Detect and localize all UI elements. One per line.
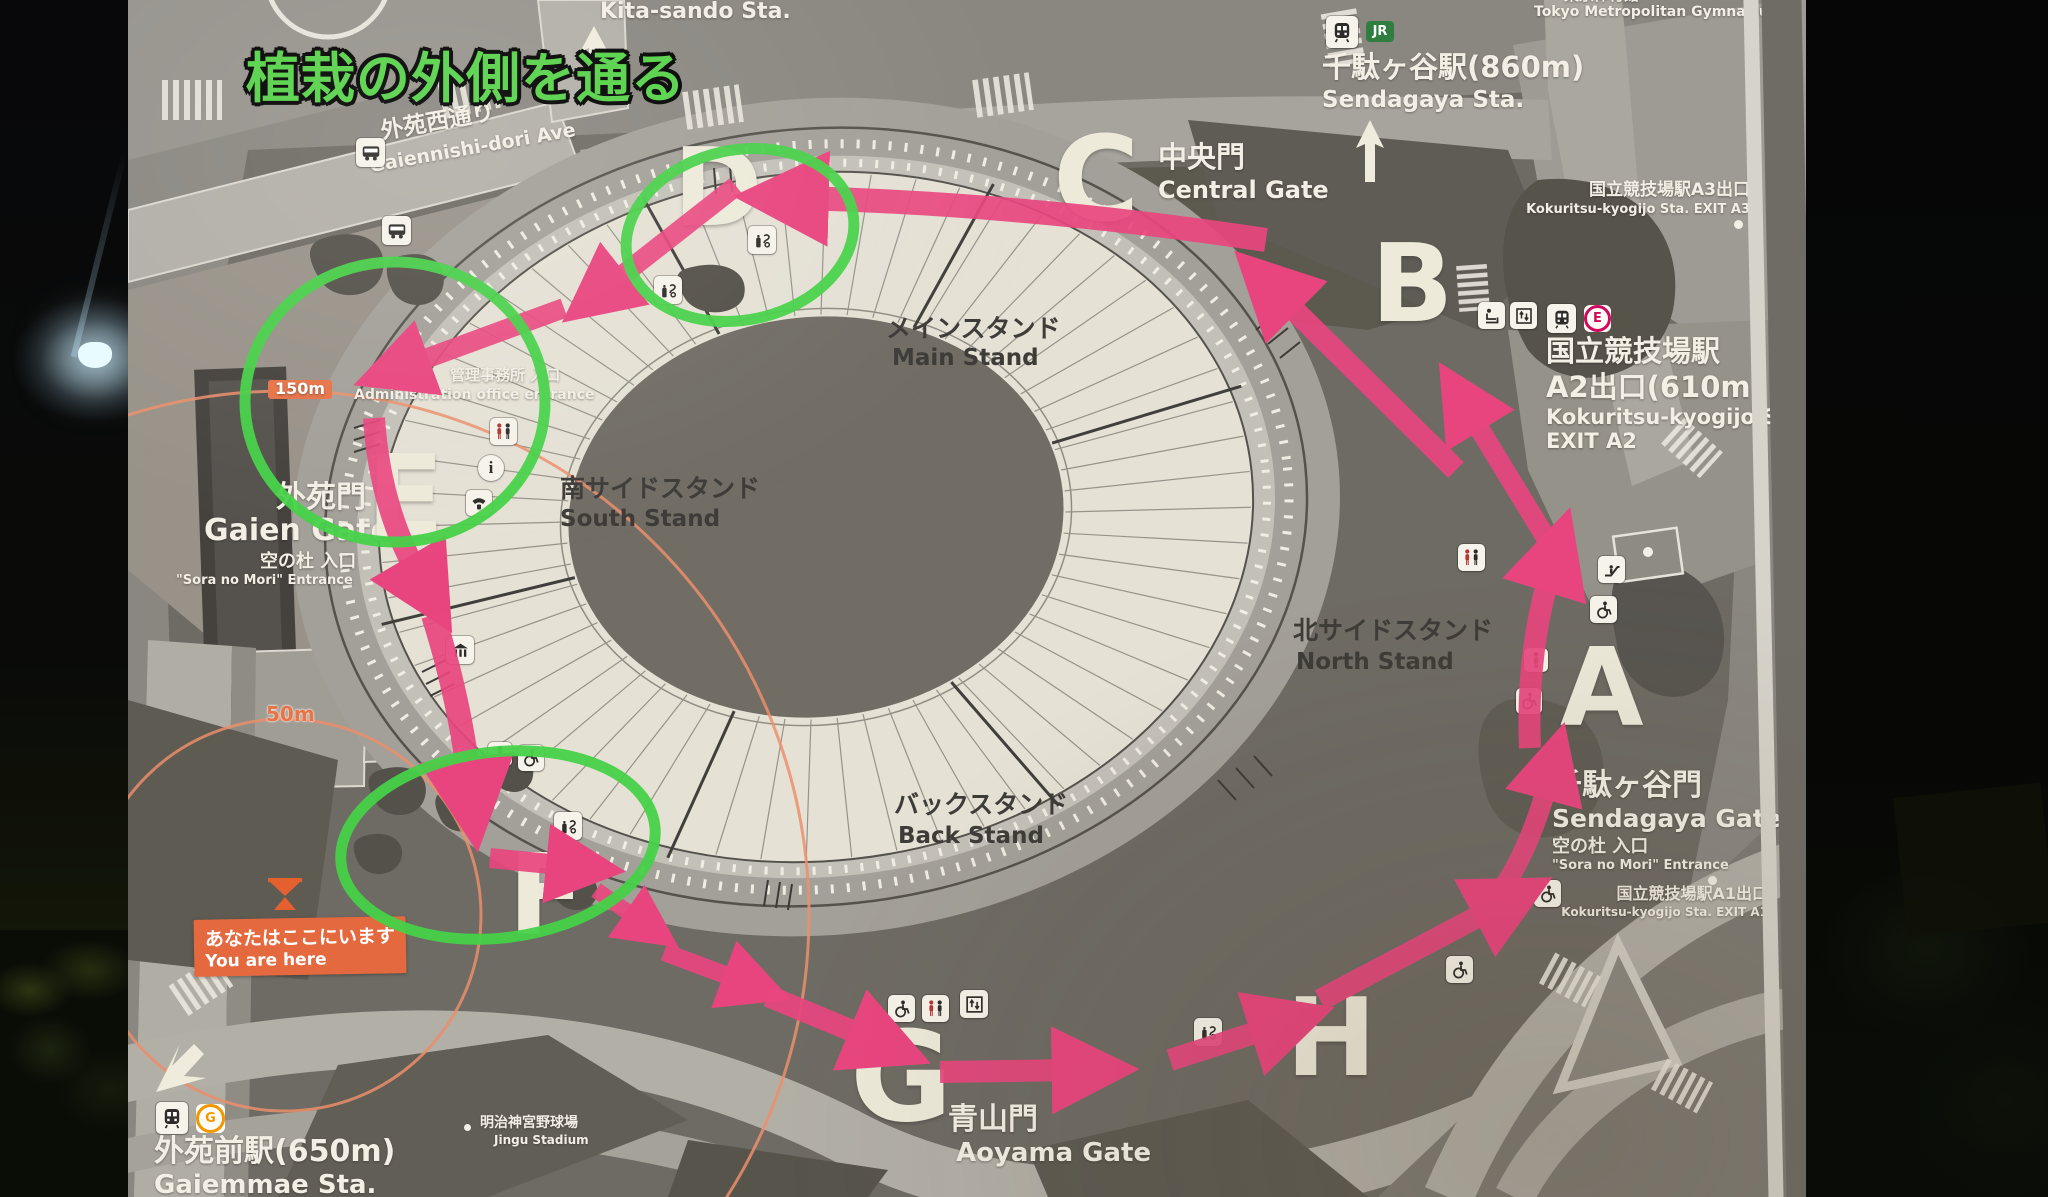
gaien-soranomori-label-jp: 空の杜 入口 [260, 553, 356, 572]
jr-line-badge: JR [1366, 21, 1394, 42]
streetlight [78, 342, 112, 368]
kitasando-station-label: Kita-sando Sta. [600, 0, 791, 23]
jingu-stadium-label-jp: 明治神宮野球場 [480, 1116, 578, 1131]
night-bushes-right [1806, 0, 2048, 1197]
north-stand-label-jp: 北サイドスタンド [1293, 618, 1493, 644]
gate-c-letter: C [1053, 118, 1140, 242]
north-stand-label-en: North Stand [1296, 650, 1454, 674]
night-photo-of-stadium-map-sign: Kita-sando Sta. 外苑西通り Gaiennishi-dori Av… [0, 0, 2048, 1197]
gaien-gate-label-jp: 外苑門 [276, 482, 366, 514]
kokuritsu-station-label-jp2: A2出口(610m) [1546, 372, 1764, 402]
gate-f-letter: F [508, 838, 585, 956]
distance-50m-label: 50m [266, 704, 315, 725]
train-icon [156, 1102, 188, 1134]
distance-150m-chip: 150m [268, 380, 332, 399]
main-stand-label-jp: メインスタンド [886, 316, 1061, 342]
gaien-gate-label-en: Gaien Gate [204, 515, 391, 547]
sendagaya-gate-label-en: Sendagaya Gate [1552, 806, 1782, 832]
elevator-icon [960, 990, 988, 1018]
exit-a1-label-en: Kokuritsu-kyogijo Sta. EXIT A1 [1498, 906, 1768, 919]
ticket-window-icon [654, 276, 682, 304]
kokuritsu-station-label-en2: EXIT A2 [1546, 430, 1637, 452]
phone-icon [466, 490, 492, 516]
aoyama-gate-label-jp: 青山門 [948, 1104, 1038, 1136]
toilet-icon [922, 995, 949, 1022]
admin-office-label-en: Administration office entrance [354, 388, 595, 403]
sendagaya-station-label-jp: 千駄ヶ谷駅(860m) [1322, 52, 1584, 82]
you-are-here-en: You are here [205, 948, 395, 971]
bus-stop-icon [356, 138, 385, 167]
back-stand-label-jp: バックスタンド [894, 792, 1068, 818]
sendagaya-soranomori-label-en: "Sora no Mori" Entrance [1552, 859, 1729, 873]
central-gate-label-en: Central Gate [1158, 178, 1329, 203]
toilet-icon [490, 418, 517, 445]
wheelchair-icon [1446, 956, 1473, 983]
wheelchair-icon [1590, 596, 1617, 623]
bench-icon [1478, 302, 1505, 329]
aoyama-gate-label-en: Aoyama Gate [956, 1140, 1151, 1167]
jingu-dot [464, 1124, 471, 1131]
security-check-icon [554, 812, 582, 840]
gaien-soranomori-label-en: "Sora no Mori" Entrance [176, 574, 353, 588]
security-check-icon [748, 226, 776, 254]
exit-a3-dot [1734, 220, 1743, 229]
central-gate-label-jp: 中央門 [1158, 142, 1245, 172]
stadium-map-signboard: Kita-sando Sta. 外苑西通り Gaiennishi-dori Av… [128, 0, 1806, 1197]
gate-b-letter: B [1371, 228, 1453, 341]
back-stand-label-en: Back Stand [898, 824, 1044, 848]
sendagaya-soranomori-label-jp: 空の杜 入口 [1552, 838, 1648, 857]
kokuritsu-station-label-jp1: 国立競技場駅 [1546, 336, 1720, 366]
gate-h-letter: H [1286, 982, 1376, 1095]
security-check-icon [1194, 1018, 1222, 1046]
gate-e-letter: E [366, 438, 445, 559]
jingu-stadium-label-en: Jingu Stadium [494, 1134, 589, 1147]
gate-g-letter: G [850, 1012, 953, 1143]
gaiemmae-station-label-jp: 外苑前駅(650m) [154, 1136, 395, 1168]
exit-a3-label-en: Kokuritsu-kyogijo Sta. EXIT A3 [1526, 203, 1750, 217]
wheelchair-icon [888, 995, 915, 1022]
gate-a-letter: A [1560, 632, 1644, 745]
dark-sign-right [1893, 783, 2048, 938]
exit-a1-label-jp: 国立競技場駅A1出口 [1528, 886, 1768, 903]
escalator-icon [1598, 556, 1625, 583]
elevator-icon [1510, 302, 1537, 329]
gaiemmae-station-label-en: Gaiemmae Sta. [154, 1172, 376, 1197]
south-stand-label-en: South Stand [560, 507, 720, 531]
toei-oedo-line-badge: E [1584, 305, 1611, 332]
sendagaya-gate-label-jp: 千駄ヶ谷門 [1552, 770, 1702, 802]
you-are-here-jp: あなたはここにいます [205, 921, 395, 951]
sendagaya-station-label-en: Sendagaya Sta. [1322, 88, 1524, 112]
exit-a3-label-jp: 国立競技場駅A3出口 [1558, 182, 1750, 200]
information-icon: i [478, 455, 504, 481]
admin-office-label-jp: 管理事務所 入口 [450, 368, 560, 384]
wheelchair-icon [1534, 880, 1561, 907]
south-stand-label-jp: 南サイドスタンド [560, 476, 760, 502]
ginza-line-badge: G [196, 1104, 225, 1133]
train-icon [1326, 16, 1358, 48]
wheelchair-icon [1516, 688, 1542, 714]
train-icon [1547, 304, 1576, 333]
annotation-note-text: 植栽の外側を通る [246, 34, 686, 113]
bus-stop-icon [382, 216, 411, 245]
wheelchair-icon [518, 745, 544, 771]
attendant-icon [1524, 648, 1548, 672]
main-stand-label-en: Main Stand [892, 346, 1039, 370]
toilet-icon [1458, 544, 1485, 571]
building-icon [446, 636, 474, 664]
you-are-here-box: あなたはここにいます You are here [194, 916, 407, 977]
attendant-icon [488, 742, 512, 766]
